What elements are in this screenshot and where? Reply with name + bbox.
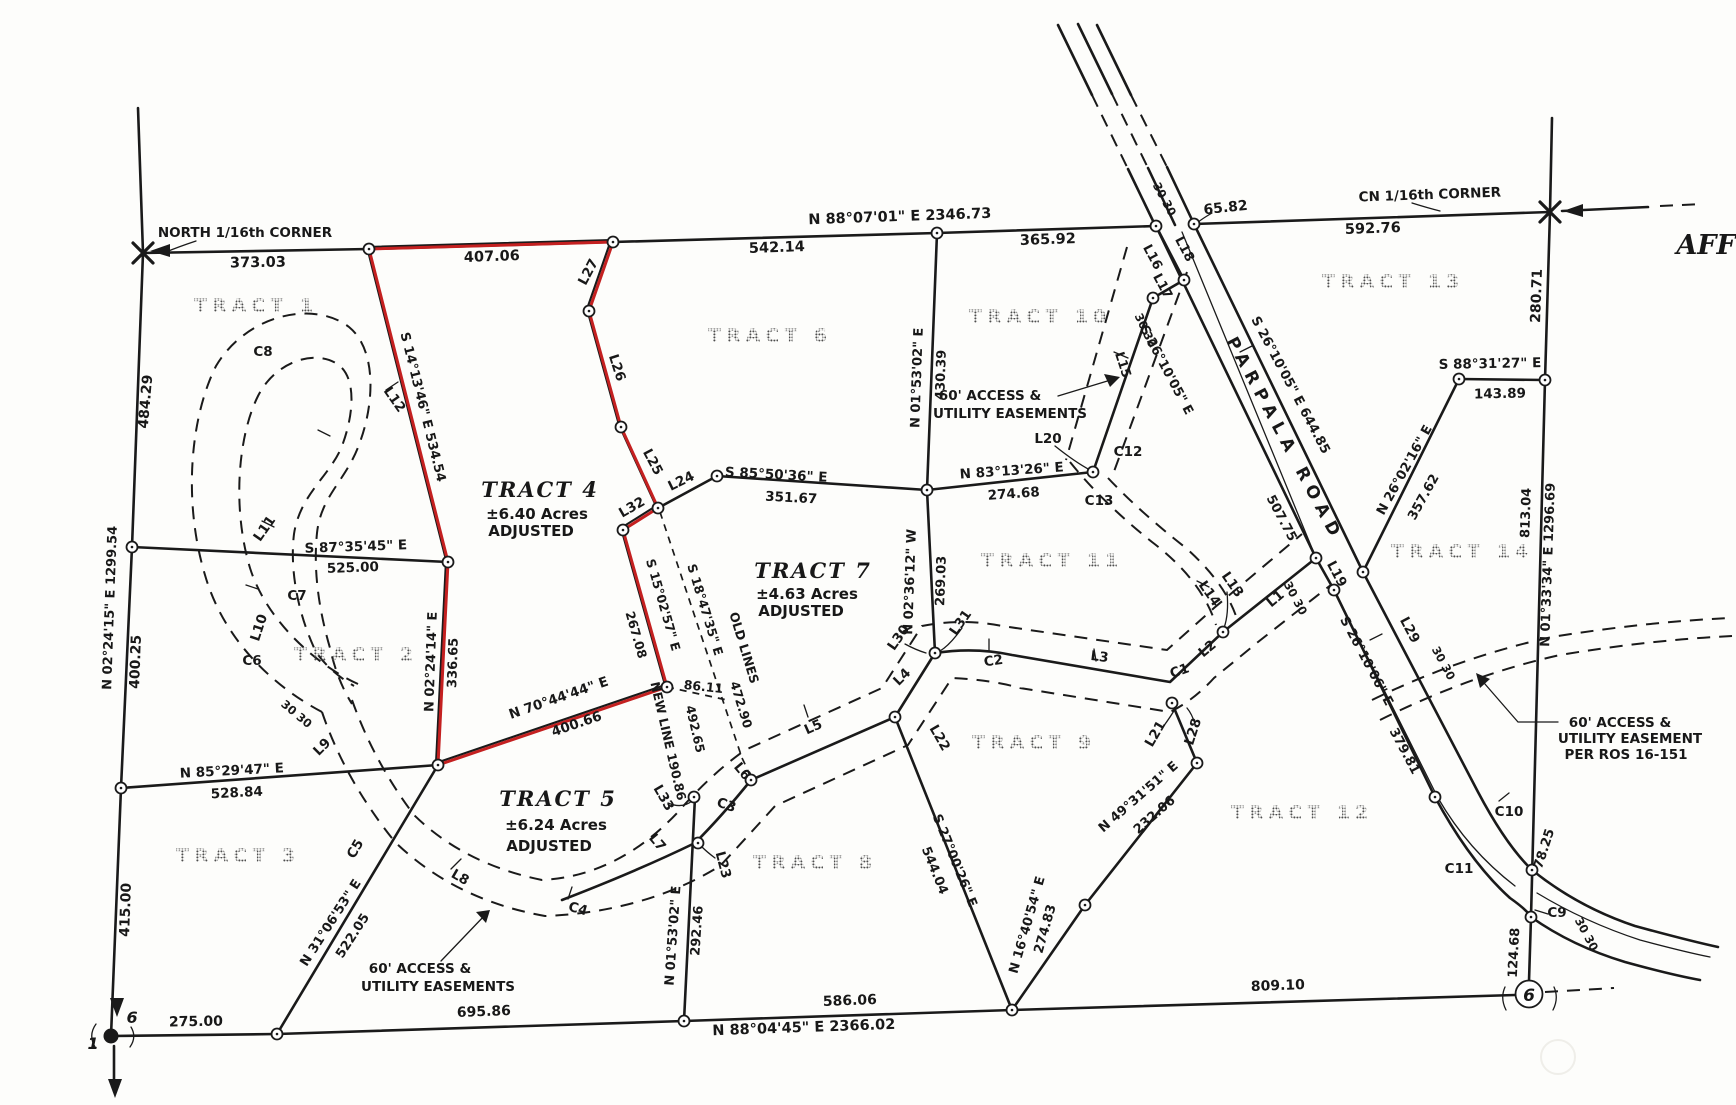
c7-label: C7: [287, 588, 306, 604]
leader-north-corner: [166, 241, 196, 252]
bearing-s2610-06-label: S 26°10'06" E: [1336, 614, 1396, 708]
dim-400-66-label: 400.66: [549, 708, 603, 740]
tract7-acres-label: ±4.63 Acres: [756, 585, 858, 603]
leader-l13: [1224, 592, 1228, 628]
plat-map-page: NORTH 1/16th CORNER373.03407.06N 88°07'0…: [0, 0, 1736, 1105]
vertex-center-dot: [693, 796, 696, 799]
dim-592-label: 592.76: [1345, 220, 1401, 238]
ros-2-label: UTILITY EASEMENT: [1558, 731, 1703, 747]
vertex-center-dot: [622, 529, 625, 532]
dim-507-label: 507.75: [1263, 493, 1300, 544]
tract4-outline: [367, 240, 667, 765]
dim-274-68-label: 274.68: [987, 484, 1040, 504]
l11-label: L11: [250, 513, 279, 545]
dim-492-label: 492.65: [683, 704, 708, 754]
tract10-label: TRACT 10: [969, 306, 1111, 328]
north-corner-stub: [138, 108, 143, 253]
old-lines-label: OLD LINES: [726, 610, 762, 685]
l28-label: L28: [1181, 716, 1205, 747]
leader-cn-corner: [1412, 203, 1440, 211]
bearing-s8550-label: S 85°50'36" E: [725, 464, 828, 485]
vertex-center-dot: [1084, 904, 1087, 907]
road-ext-centerline: [1537, 893, 1710, 957]
leader-l30: [905, 644, 926, 653]
vertex-center-dot: [750, 779, 753, 782]
dim-415-label: 415.00: [117, 882, 135, 937]
dim-525-label: 525.00: [327, 559, 380, 577]
c6-label: C6: [242, 653, 261, 669]
bearing-n8313-label: N 83°13'26" E: [959, 459, 1064, 482]
tract3-label: TRACT 3: [176, 845, 300, 867]
c5-label: C5: [344, 837, 368, 862]
vertex-center-dot: [666, 686, 669, 689]
bearing-n0224-14-label: N 02°24'14" E: [422, 611, 440, 712]
g3030-c9-label: 30 30: [1572, 915, 1601, 953]
ros-arrow-line: [1478, 676, 1558, 722]
dim-336-label: 336.65: [445, 638, 462, 689]
tract2-label: TRACT 2: [294, 644, 418, 666]
l23-label: L23: [712, 850, 735, 881]
vertex-center-dot: [1171, 702, 1174, 705]
c11-label: C11: [1445, 861, 1474, 877]
l20-label: L20: [1034, 431, 1061, 447]
vertex-center-dot: [437, 764, 440, 767]
vertex-center-dot: [697, 842, 700, 845]
tract6-label: TRACT 6: [708, 325, 832, 347]
c8-label: C8: [253, 344, 272, 360]
tract7-adj-label: ADJUSTED: [758, 602, 844, 620]
vertex-center-dot: [131, 546, 134, 549]
bearing-s1847-label: S 18°47'35" E: [684, 562, 726, 657]
bearing-s8831-label: S 88°31'27" E: [1438, 355, 1541, 373]
easement-sw-arrow-line: [441, 914, 486, 961]
vertex-center-dot: [1434, 796, 1437, 799]
corner-1-label: 1: [87, 1034, 98, 1053]
dim-275-label: 275.00: [169, 1014, 224, 1031]
l22-label: L22: [926, 722, 954, 754]
bearing-n0236-label: N 02°36'12" W: [901, 529, 920, 635]
bearing-n0224-15-label: N 02°24'15" E 1299.54: [100, 526, 121, 691]
bearing-s1502-label: S 15°02'57" E: [643, 557, 684, 652]
vertex-center-dot: [588, 310, 591, 313]
l15-label: L15: [1111, 350, 1133, 380]
vertex-center-dot: [612, 241, 615, 244]
dim-542-label: 542.14: [749, 239, 805, 257]
vertex-center-dot: [120, 787, 123, 790]
dim-373-label: 373.03: [230, 255, 286, 272]
dim-400-25-label: 400.25: [127, 635, 145, 690]
easement-sw-2-label: UTILITY EASEMENTS: [361, 979, 515, 995]
tract5-label: TRACT 5: [499, 786, 617, 811]
vertex-center-dot: [1458, 378, 1461, 381]
tract5-adj-label: ADJUSTED: [506, 837, 592, 855]
tract14-label: TRACT 14: [1391, 541, 1533, 563]
easement10-1-label: 60' ACCESS &: [939, 388, 1042, 404]
dim-292-label: 292.46: [688, 905, 706, 956]
bearing-s8735-label: S 87°35'45" E: [304, 537, 407, 557]
l9-label: L9: [310, 735, 334, 759]
dim-143-label: 143.89: [1474, 386, 1526, 403]
dim-365-label: 365.92: [1020, 231, 1076, 249]
arrow-cn-left: [1563, 204, 1583, 217]
aff-label: AFF: [1673, 230, 1736, 261]
vertex-center-dot: [934, 652, 937, 655]
l7-label: L7: [645, 830, 669, 854]
vertex-center-dot: [1544, 379, 1547, 382]
new-line-label: NEW LINE 190.86: [647, 680, 689, 802]
cn-corner-stub-up: [1550, 118, 1552, 212]
tract5-acres-label: ±6.24 Acres: [505, 816, 607, 834]
easement10-arrow-line: [1058, 379, 1114, 396]
dim-78-label: 78.25: [1531, 827, 1558, 871]
vertex-center-dot: [657, 507, 660, 510]
scan-artifact: [1541, 1040, 1575, 1074]
dim-528-label: 528.84: [210, 784, 263, 803]
vertex-center-dot: [1222, 631, 1225, 634]
tract8-label: TRACT 8: [753, 852, 877, 874]
l4-label: L4: [890, 665, 914, 689]
dim-695-label: 695.86: [457, 1003, 512, 1021]
l5-label: L5: [802, 716, 825, 738]
l3-label: L3: [1090, 648, 1110, 666]
vertex-center-dot: [276, 1033, 279, 1036]
ros-3-label: PER ROS 16-151: [1564, 747, 1687, 763]
l8-label: L8: [448, 866, 472, 889]
arrow-top-left: [150, 244, 170, 257]
vertex-center-dot: [936, 232, 939, 235]
vertex-center-dot: [894, 716, 897, 719]
arrow-easement-sw: [476, 910, 490, 923]
tract4-label: TRACT 4: [481, 477, 599, 502]
dim-280-label: 280.71: [1528, 269, 1546, 324]
dim-586-label: 586.06: [823, 992, 878, 1010]
survey-plat-map: NORTH 1/16th CORNER373.03407.06N 88°07'0…: [0, 0, 1736, 1105]
corner-1-monument: [104, 1029, 119, 1044]
bearing-top-label: N 88°07'01" E 2346.73: [808, 206, 991, 228]
vertex-center-dot: [620, 426, 623, 429]
vertex-center-dot: [1196, 762, 1199, 765]
l16-label: L16: [1139, 242, 1165, 272]
easement-sw-1-label: 60' ACCESS &: [369, 961, 472, 977]
vertex-center-dot: [1530, 916, 1533, 919]
easement10-2-label: UTILITY EASEMENTS: [933, 406, 1087, 422]
line-l16-l17-l15: [1093, 226, 1184, 472]
g3030-ros-label: 30 30: [1429, 644, 1458, 682]
easement-c12-c13-a: [1070, 462, 1216, 625]
c4-label: C4: [567, 899, 590, 919]
dim-407-label: 407.06: [464, 248, 520, 266]
tract4-acres-label: ±6.40 Acres: [486, 505, 588, 523]
dim-809-label: 809.10: [1251, 977, 1306, 995]
cn-right-dash: [1660, 204, 1702, 206]
corner-6-label: 6: [126, 1008, 137, 1027]
tract12-label: TRACT 12: [1231, 802, 1373, 824]
dim-379-label: 379.81: [1386, 726, 1423, 777]
vertex-center-dot: [1333, 589, 1336, 592]
vertex-center-dot: [683, 1020, 686, 1023]
tract1-label: TRACT 1: [194, 295, 318, 317]
dim-65-label: 65.82: [1203, 198, 1249, 219]
road-above-dashed: [1092, 94, 1167, 169]
dim-86-label: 86.11: [683, 677, 724, 696]
dim-813-label: 813.04: [1518, 488, 1535, 539]
c12-label: C12: [1114, 444, 1143, 460]
vertex-center-dot: [1152, 297, 1155, 300]
c13-label: C13: [1085, 493, 1114, 509]
vertex-center-dot: [716, 475, 719, 478]
vertex-center-dot: [1092, 471, 1095, 474]
dim-484-label: 484.29: [136, 374, 157, 429]
vertex-center-dot: [368, 248, 371, 251]
dim-472-label: 472.90: [727, 679, 756, 730]
vertex-center-dot: [1531, 869, 1534, 872]
c10-label: C10: [1495, 804, 1524, 820]
dim-357-label: 357.62: [1405, 472, 1442, 523]
tract13-label: TRACT 13: [1322, 271, 1464, 293]
dim-351-label: 351.67: [765, 489, 818, 508]
tract9-label: TRACT 9: [972, 732, 1096, 754]
vertex-center-dot: [1155, 225, 1158, 228]
ref-6-label: 6: [1523, 986, 1535, 1006]
l13-label: L13: [1218, 569, 1247, 601]
tract11-label: TRACT 11: [981, 550, 1123, 572]
c2-label: C2: [983, 652, 1004, 671]
c3-label: C3: [715, 794, 739, 816]
ros-1-label: 60' ACCESS &: [1569, 715, 1672, 731]
line-s8831: [1459, 379, 1545, 380]
l10-label: L10: [247, 612, 271, 643]
vertex-center-dot: [447, 561, 450, 564]
cn-corner-label: CN 1/16th CORNER: [1358, 185, 1502, 206]
c9-label: C9: [1547, 905, 1566, 921]
map-labels: NORTH 1/16th CORNER373.03407.06N 88°07'0…: [87, 180, 1736, 1053]
arrow-easement10: [1104, 374, 1120, 387]
vertex-center-dot: [1193, 223, 1196, 226]
vertex-center-dot: [926, 489, 929, 492]
bearing-n0153-bot-label: N 01°53'02" E: [663, 885, 685, 986]
tract7-label: TRACT 7: [754, 558, 872, 583]
leader-c9: [1535, 910, 1548, 914]
dim-124-label: 124.68: [1506, 927, 1524, 978]
tract4-adj-label: ADJUSTED: [488, 522, 574, 540]
l19-label: L19: [1323, 558, 1350, 590]
vertex-center-dot: [1315, 557, 1318, 560]
bearing-n0153-top-label: N 01°53'02" E: [908, 327, 926, 428]
north-corner-label: NORTH 1/16th CORNER: [158, 225, 333, 241]
vertex-center-dot: [1011, 1009, 1014, 1012]
vertex-center-dot: [1183, 279, 1186, 282]
dim-269-label: 269.03: [933, 556, 950, 607]
g3030-l9-label: 30 30: [278, 697, 315, 731]
l2-label: L2: [1195, 637, 1219, 661]
vertex-center-dot: [1362, 571, 1365, 574]
